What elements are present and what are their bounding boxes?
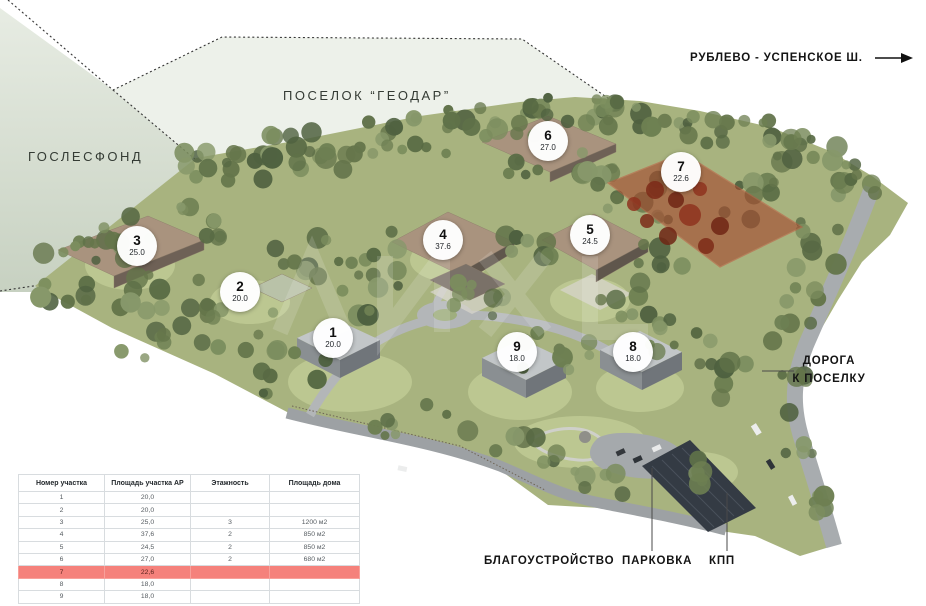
goslesfond-label: ГОСЛЕСФОНД — [28, 149, 143, 164]
table-row-4[interactable]: 437,62850 м2 — [19, 529, 360, 541]
plot-number: 6 — [544, 129, 552, 143]
highway-label-group: РУБЛЕВО - УСПЕНСКОЕ Ш. — [690, 52, 913, 64]
table-cell: 20,0 — [105, 492, 191, 504]
table-cell: 2 — [191, 541, 270, 553]
plot-area-value: 25.0 — [129, 248, 145, 258]
plot-number: 8 — [629, 340, 637, 354]
plot-marker-2[interactable]: 220.0 — [220, 272, 260, 312]
plot-area-value: 24.5 — [582, 237, 598, 247]
masterplan-page: ГОСЛЕСФОНД ПОСЕЛОК “ГЕОДАР” РУБЛЕВО - УС… — [0, 0, 926, 606]
plot-area-value: 18.0 — [509, 354, 525, 364]
table-row-9[interactable]: 918,0 — [19, 591, 360, 603]
table-cell — [191, 578, 270, 590]
table-cell: 1 — [19, 492, 105, 504]
checkpoint-label: КПП — [709, 555, 735, 567]
table-row-7[interactable]: 722,6 — [19, 566, 360, 578]
plot-marker-7[interactable]: 722.6 — [661, 152, 701, 192]
table-cell — [270, 504, 360, 516]
column-header: Площадь дома — [270, 475, 360, 492]
table-cell: 850 м2 — [270, 541, 360, 553]
table-row-8[interactable]: 818,0 — [19, 578, 360, 590]
column-header: Этажность — [191, 475, 270, 492]
table-cell: 24,5 — [105, 541, 191, 553]
table-cell: 25,0 — [105, 516, 191, 528]
landscaping-label: БЛАГОУСТРОЙСТВО — [484, 555, 614, 567]
table-cell: 18,0 — [105, 591, 191, 603]
table-cell: 2 — [19, 504, 105, 516]
table-cell: 27,0 — [105, 553, 191, 565]
arrow-right-icon — [875, 52, 913, 64]
plot-area-value: 37.6 — [435, 242, 451, 252]
plot-number: 2 — [236, 280, 244, 294]
table-row-5[interactable]: 524,52850 м2 — [19, 541, 360, 553]
table-cell: 18,0 — [105, 578, 191, 590]
table-cell: 4 — [19, 529, 105, 541]
plot-marker-9[interactable]: 918.0 — [497, 332, 537, 372]
table-cell: 680 м2 — [270, 553, 360, 565]
table-cell: 7 — [19, 566, 105, 578]
parking-label: ПАРКОВКА — [622, 555, 692, 567]
table-cell — [191, 566, 270, 578]
table-cell: 9 — [19, 591, 105, 603]
table-cell — [270, 566, 360, 578]
plot-number: 1 — [329, 326, 337, 340]
plot-area-value: 20.0 — [325, 340, 341, 350]
table-body: 120,0220,0325,031200 м2437,62850 м2524,5… — [19, 492, 360, 604]
plot-number: 3 — [133, 234, 141, 248]
plot-number: 5 — [586, 223, 594, 237]
table-row-2[interactable]: 220,0 — [19, 504, 360, 516]
table-cell — [270, 492, 360, 504]
table-row-3[interactable]: 325,031200 м2 — [19, 516, 360, 528]
table-cell: 850 м2 — [270, 529, 360, 541]
plot-number: 4 — [439, 228, 447, 242]
plot-area-value: 27.0 — [540, 143, 556, 153]
table-cell: 2 — [191, 529, 270, 541]
table-cell — [270, 578, 360, 590]
plot-marker-6[interactable]: 627.0 — [528, 121, 568, 161]
road-to-settlement-label: ДОРОГА К ПОСЕЛКУ — [786, 353, 872, 389]
table-cell — [191, 591, 270, 603]
plot-marker-5[interactable]: 524.5 — [570, 215, 610, 255]
table-cell: 1200 м2 — [270, 516, 360, 528]
road-label-line2: К ПОСЕЛКУ — [786, 371, 872, 389]
plot-number: 7 — [677, 160, 685, 174]
table-cell — [191, 492, 270, 504]
plot-area-value: 18.0 — [625, 354, 641, 364]
table-header-row: Номер участкаПлощадь участка АРЭтажность… — [19, 475, 360, 492]
table-cell — [270, 591, 360, 603]
table-cell — [191, 504, 270, 516]
table-cell: 8 — [19, 578, 105, 590]
column-header: Номер участка — [19, 475, 105, 492]
plot-marker-3[interactable]: 325.0 — [117, 226, 157, 266]
table-cell: 20,0 — [105, 504, 191, 516]
plot-area-value: 22.6 — [673, 174, 689, 184]
road-label-line1: ДОРОГА — [786, 353, 872, 371]
table-row-6[interactable]: 627,02680 м2 — [19, 553, 360, 565]
decorative-rock — [579, 431, 591, 443]
plots-table: Номер участкаПлощадь участка АРЭтажность… — [18, 474, 360, 604]
table-cell: 3 — [191, 516, 270, 528]
table-cell: 3 — [19, 516, 105, 528]
plot-number: 9 — [513, 340, 521, 354]
table-cell: 6 — [19, 553, 105, 565]
column-header: Площадь участка АР — [105, 475, 191, 492]
plot-marker-4[interactable]: 437.6 — [423, 220, 463, 260]
table-cell: 5 — [19, 541, 105, 553]
plot-marker-8[interactable]: 818.0 — [613, 332, 653, 372]
settlement-label: ПОСЕЛОК “ГЕОДАР” — [283, 88, 451, 103]
table-cell: 22,6 — [105, 566, 191, 578]
table-row-1[interactable]: 120,0 — [19, 492, 360, 504]
plot-marker-1[interactable]: 120.0 — [313, 318, 353, 358]
plot-area-value: 20.0 — [232, 294, 248, 304]
table-cell: 37,6 — [105, 529, 191, 541]
highway-label: РУБЛЕВО - УСПЕНСКОЕ Ш. — [690, 52, 863, 64]
table-cell: 2 — [191, 553, 270, 565]
